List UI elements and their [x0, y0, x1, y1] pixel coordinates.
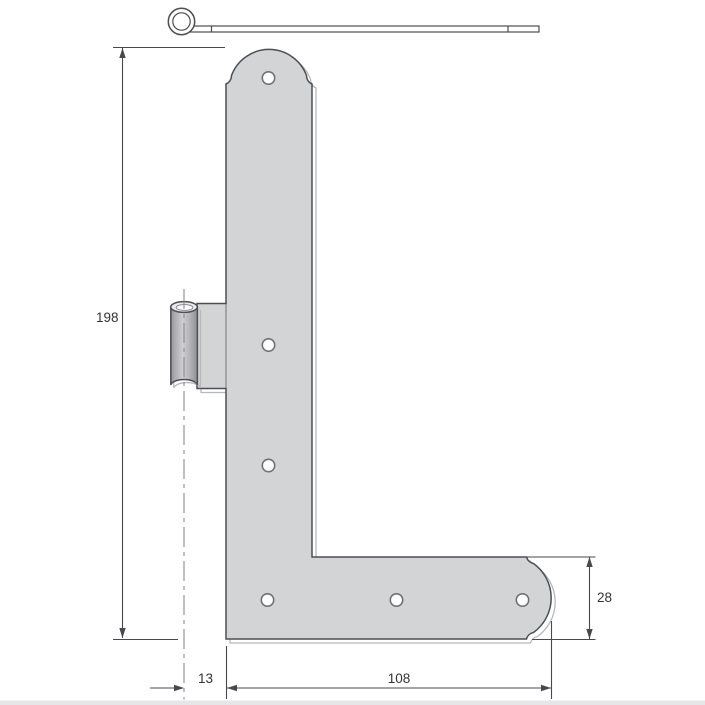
- page-bottom-edge: [0, 701, 705, 705]
- l-shaped-hinge-plate: [197, 49, 555, 643]
- dimension-pin-offset: 13: [150, 671, 213, 691]
- technical-drawing-page: 198 13 108 28: [0, 0, 705, 705]
- dimension-label-length: 108: [388, 671, 411, 686]
- arrowhead-down-icon: [119, 628, 125, 638]
- dimension-label-height: 198: [96, 310, 119, 325]
- arrowhead-up-icon: [119, 48, 125, 58]
- hinge-plate-body: [197, 49, 551, 639]
- pin-curl-inner: [173, 13, 190, 30]
- technical-drawing-canvas: 198 13 108 28: [0, 0, 705, 705]
- screw-hole: [262, 339, 274, 351]
- arrowhead-right-icon: [174, 685, 184, 691]
- screw-hole: [516, 594, 528, 606]
- pin-strap-bar: [186, 26, 539, 32]
- screw-hole: [390, 594, 402, 606]
- arrowhead-up-icon: [586, 557, 592, 567]
- screw-hole: [262, 459, 274, 471]
- arrowhead-right-icon: [541, 685, 551, 691]
- hinge-knuckle-barrel: [171, 289, 201, 700]
- hinge-pin-side-view: [168, 8, 539, 34]
- screw-hole: [261, 594, 273, 606]
- screw-hole: [262, 72, 274, 84]
- arrowhead-down-icon: [586, 629, 592, 639]
- arrowhead-left-icon: [227, 685, 237, 691]
- dimension-label-width: 28: [597, 590, 612, 605]
- dimension-label-offset: 13: [198, 671, 213, 686]
